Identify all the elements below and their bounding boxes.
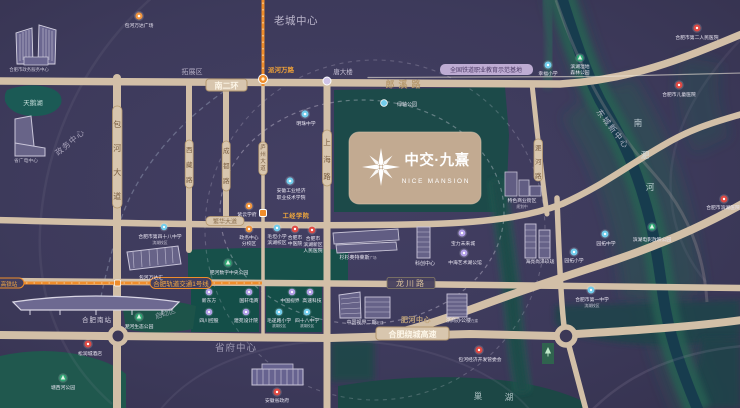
svg-text:毛坦小学: 毛坦小学 <box>267 233 286 240</box>
svg-text:道: 道 <box>113 191 121 201</box>
svg-text:四十八中学: 四十八中学 <box>295 317 319 324</box>
svg-text:包河经济开发管委会: 包河经济开发管委会 <box>458 356 501 363</box>
svg-text:中国视界: 中国视界 <box>280 297 299 304</box>
svg-text:高速科技: 高速科技 <box>302 297 321 304</box>
svg-text:幸福小学: 幸福小学 <box>538 70 557 77</box>
svg-text:巢: 巢 <box>474 391 483 401</box>
svg-text:湖: 湖 <box>505 392 514 402</box>
svg-text:科创中心: 科创中心 <box>415 260 435 267</box>
svg-text:NICE MANSION: NICE MANSION <box>402 178 470 185</box>
svg-text:都: 都 <box>223 162 230 170</box>
svg-text:包河万达广场: 包河万达广场 <box>125 22 154 29</box>
svg-text:道: 道 <box>260 164 266 172</box>
svg-text:海: 海 <box>323 154 331 164</box>
svg-text:中国视界二期在建: 中国视界二期在建 <box>346 319 384 326</box>
svg-text:淝: 淝 <box>535 143 542 152</box>
svg-text:杉杉奥特莱斯广场: 杉杉奥特莱斯广场 <box>339 254 377 261</box>
svg-text:建苑设计院: 建苑设计院 <box>234 317 258 324</box>
svg-text:规划中: 规划中 <box>516 204 528 209</box>
svg-text:路: 路 <box>323 171 331 181</box>
svg-text:大: 大 <box>260 157 266 165</box>
svg-text:海亮尚泽玖珑: 海亮尚泽玖珑 <box>526 258 555 265</box>
svg-text:路: 路 <box>186 175 193 184</box>
svg-text:派河万路: 派河万路 <box>268 65 295 74</box>
svg-text:职业技术学院: 职业技术学院 <box>277 194 306 201</box>
svg-text:紫云学府: 紫云学府 <box>237 211 256 218</box>
svg-text:合肥绕城高速: 合肥绕城高速 <box>388 329 437 339</box>
svg-text:合肥市: 合肥市 <box>306 235 321 242</box>
svg-text:滨湖校区: 滨湖校区 <box>152 240 167 245</box>
svg-text:中医院: 中医院 <box>288 240 303 247</box>
svg-text:河: 河 <box>535 158 542 166</box>
svg-text:庐: 庐 <box>260 143 266 151</box>
svg-text:安徽省政府: 安徽省政府 <box>265 397 289 404</box>
svg-text:淝河生态公园: 淝河生态公园 <box>125 323 154 330</box>
svg-text:滨湖校区: 滨湖校区 <box>584 303 599 308</box>
svg-text:路: 路 <box>535 171 542 180</box>
svg-text:繁华大道: 繁华大道 <box>213 218 237 226</box>
svg-text:老城中心: 老城中心 <box>274 14 318 27</box>
svg-text:南二环: 南二环 <box>215 81 239 91</box>
svg-text:明珠中学: 明珠中学 <box>296 120 315 127</box>
svg-text:宝力未来城: 宝力未来城 <box>451 240 475 247</box>
svg-text:中海艺术湖公馆: 中海艺术湖公馆 <box>448 259 482 266</box>
svg-text:分校区: 分校区 <box>242 240 257 247</box>
svg-text:国轩电商: 国轩电商 <box>239 297 258 304</box>
svg-text:合肥市: 合肥市 <box>288 234 303 241</box>
svg-text:南: 南 <box>634 118 643 128</box>
svg-text:全国铁道职业教育示范基地: 全国铁道职业教育示范基地 <box>450 66 522 74</box>
svg-text:工经学院: 工经学院 <box>283 212 310 220</box>
svg-text:合肥南站: 合肥南站 <box>82 315 112 324</box>
svg-text:滨湖校区: 滨湖校区 <box>300 323 315 328</box>
svg-text:特色商业街区: 特色商业街区 <box>508 197 537 204</box>
svg-text:拓展区: 拓展区 <box>182 67 203 76</box>
svg-text:郎溪路: 郎溪路 <box>385 79 424 90</box>
svg-text:新东方: 新东方 <box>202 297 217 304</box>
svg-text:上: 上 <box>323 138 331 147</box>
svg-text:政务中心: 政务中心 <box>239 234 258 241</box>
svg-text:合肥市政务服务中心: 合肥市政务服务中心 <box>9 66 49 73</box>
svg-text:四川控股: 四川控股 <box>199 317 218 324</box>
svg-text:浙商办公楼在建: 浙商办公楼在建 <box>446 317 479 324</box>
svg-text:塘西河公园: 塘西河公园 <box>51 384 75 391</box>
svg-text:唐大楼: 唐大楼 <box>333 67 353 76</box>
svg-text:州: 州 <box>260 152 266 158</box>
svg-text:河: 河 <box>113 143 121 153</box>
svg-text:滨湖校区: 滨湖校区 <box>272 323 287 328</box>
svg-text:合肥市第一中学: 合肥市第一中学 <box>575 296 609 303</box>
svg-text:龙川路: 龙川路 <box>396 278 426 288</box>
svg-text:成: 成 <box>223 146 230 155</box>
svg-text:西: 西 <box>186 146 193 154</box>
svg-text:河: 河 <box>646 182 655 192</box>
svg-text:合肥市第二人民医院: 合肥市第二人民医院 <box>675 34 718 41</box>
svg-text:肥河中心: 肥河中心 <box>400 315 431 324</box>
svg-text:中交·九熹: 中交·九熹 <box>404 151 469 169</box>
svg-text:合肥市儿童医院: 合肥市儿童医院 <box>662 91 696 98</box>
svg-text:松润城酒店: 松润城酒店 <box>78 350 102 357</box>
svg-text:包: 包 <box>113 119 121 129</box>
svg-text:森林公园: 森林公园 <box>570 69 589 76</box>
svg-text:园拓小学: 园拓小学 <box>564 257 583 264</box>
svg-text:滨湖校区: 滨湖校区 <box>267 239 286 246</box>
svg-text:绿轴公园: 绿轴公园 <box>397 101 417 108</box>
svg-text:合肥市第四十八中学: 合肥市第四十八中学 <box>138 233 181 240</box>
svg-text:省广电中心: 省广电中心 <box>14 157 38 164</box>
svg-text:园拓中学: 园拓中学 <box>596 240 615 247</box>
svg-text:高铁站: 高铁站 <box>1 280 18 288</box>
svg-text:合肥市滨湖医院: 合肥市滨湖医院 <box>706 204 740 211</box>
svg-text:大: 大 <box>113 167 121 177</box>
svg-text:安徽工业经济: 安徽工业经济 <box>277 187 306 194</box>
svg-text:天鹅湖: 天鹅湖 <box>23 98 43 107</box>
svg-text:省府中心: 省府中心 <box>215 342 257 354</box>
svg-text:毛遂路小学: 毛遂路小学 <box>267 317 291 324</box>
svg-text:滨湖新区: 滨湖新区 <box>303 241 322 248</box>
svg-text:人民医院: 人民医院 <box>303 247 322 254</box>
svg-text:藏: 藏 <box>186 160 193 169</box>
svg-text:淝: 淝 <box>641 150 650 160</box>
svg-text:滨湖电影放映公园: 滨湖电影放映公园 <box>633 236 672 243</box>
svg-text:肥河数字中央公园: 肥河数字中央公园 <box>210 269 249 276</box>
svg-text:滨湖湿地: 滨湖湿地 <box>570 63 589 70</box>
svg-text:包河万达汇: 包河万达汇 <box>139 274 163 281</box>
svg-text:路: 路 <box>223 176 230 185</box>
